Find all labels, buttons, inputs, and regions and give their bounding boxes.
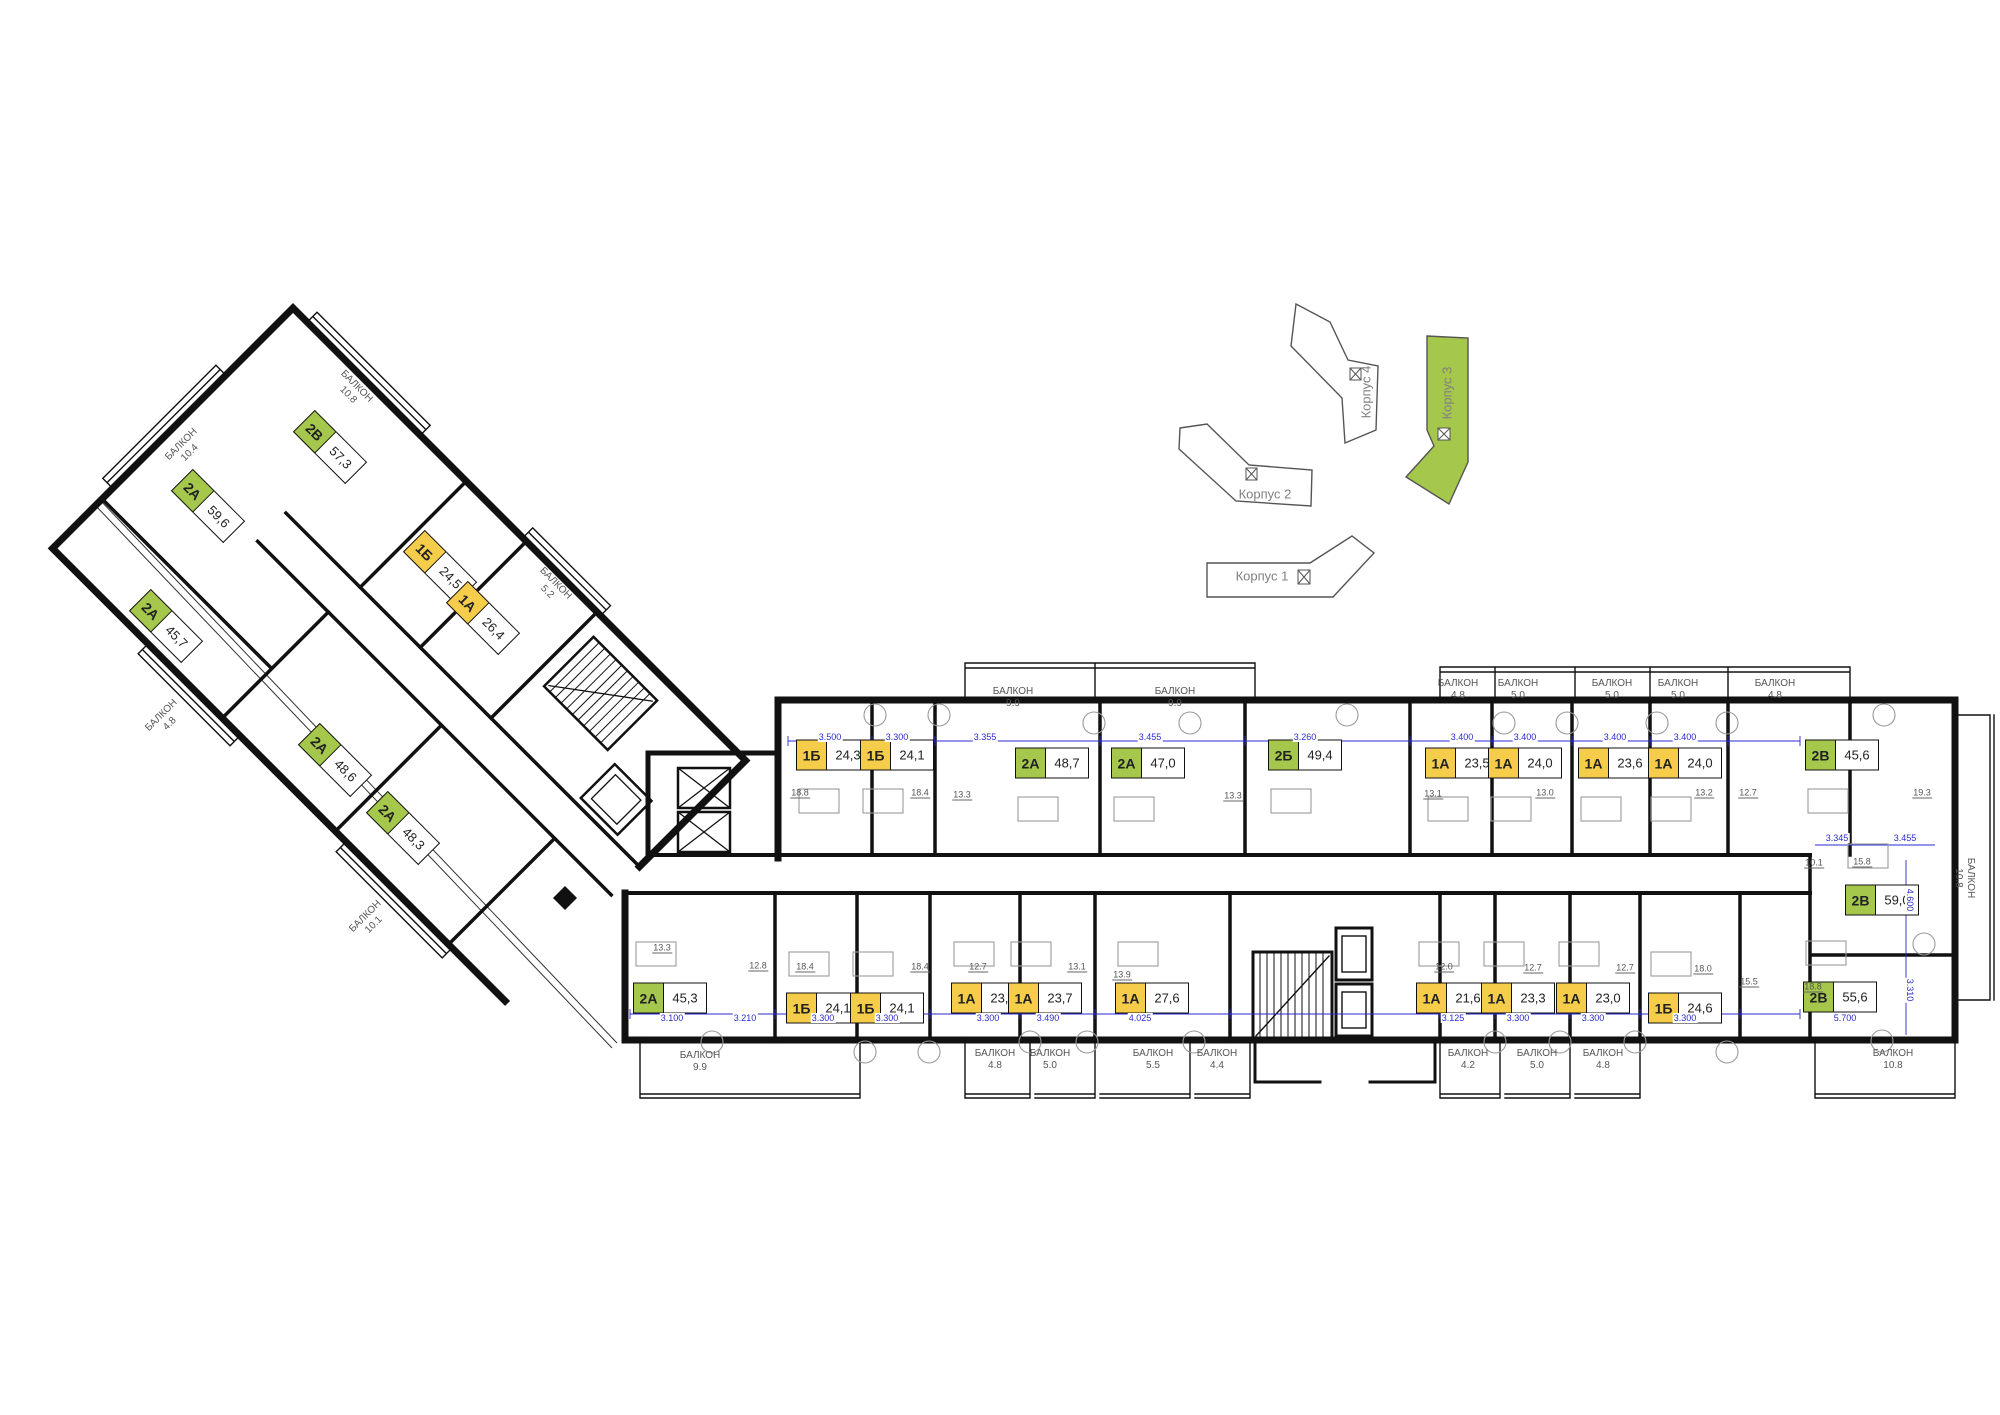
unit-badge[interactable]: 1А27,6	[1115, 983, 1189, 1014]
room-area-label: 12.7	[1523, 963, 1543, 974]
room-area-label: 18.8	[790, 788, 810, 799]
unit-badge[interactable]: 2А48,7	[1015, 748, 1089, 779]
unit-area-label: 23,3	[1512, 983, 1555, 1014]
room-area-label: 18.8	[1803, 982, 1823, 993]
unit-type-label: 1А	[1648, 748, 1679, 779]
unit-badge[interactable]: 1А23,3	[1481, 983, 1555, 1014]
minimap-label-korpus-4: Корпус 4	[1359, 366, 1374, 419]
dimension-label: 3.210	[733, 1013, 758, 1023]
dimension-label: 3.300	[811, 1013, 836, 1023]
unit-type-label: 1А	[1578, 748, 1609, 779]
balcony-label: БАЛКОН10.8	[329, 368, 375, 414]
unit-badge[interactable]: 1Б24,3	[796, 740, 870, 771]
unit-area-label: 45,6	[1836, 740, 1879, 771]
balcony-label: БАЛКОН5.5	[1133, 1048, 1174, 1072]
unit-area-label: 55,6	[1834, 982, 1877, 1013]
room-area-label: 13.9	[1112, 970, 1132, 981]
balcony-label: БАЛКОН9.9	[993, 686, 1034, 710]
unit-type-label: 1А	[1425, 748, 1456, 779]
unit-badge[interactable]: 2А48,3	[366, 791, 440, 865]
unit-area-label: 48,7	[1046, 748, 1089, 779]
labels-layer: 1Б24,31Б24,12А48,72А47,02Б49,41А23,51А24…	[0, 0, 2000, 1415]
unit-type-label: 1А	[1556, 983, 1587, 1014]
unit-badge[interactable]: 1А24,0	[1488, 748, 1562, 779]
unit-area-label: 45,3	[664, 983, 707, 1014]
dimension-label: 3.455	[1893, 833, 1918, 843]
room-area-label: 12.7	[1738, 788, 1758, 799]
unit-badge[interactable]: 2В57,3	[293, 410, 367, 484]
balcony-label: БАЛКОН5.0	[1498, 678, 1539, 702]
dimension-label: 3.300	[885, 732, 910, 742]
room-area-label: 12.0	[1434, 962, 1454, 973]
unit-badge[interactable]: 1А26,4	[446, 581, 520, 655]
room-area-label: 12.7	[968, 962, 988, 973]
dimension-label: 3.260	[1293, 732, 1318, 742]
unit-badge[interactable]: 2Б49,4	[1268, 740, 1342, 771]
balcony-label: БАЛКОН4.4	[1197, 1048, 1238, 1072]
unit-badge[interactable]: 1А21,6	[1416, 983, 1490, 1014]
room-area-label: 15.8	[1852, 857, 1872, 868]
room-area-label: 13.1	[1423, 789, 1443, 800]
room-area-label: 13.1	[1067, 962, 1087, 973]
unit-area-label: 24,1	[891, 740, 934, 771]
dimension-label: 3.355	[973, 732, 998, 742]
dimension-label: 3.300	[976, 1013, 1001, 1023]
balcony-label: БАЛКОН10.4	[163, 426, 209, 472]
balcony-label: БАЛКОН10.8	[1873, 1048, 1914, 1072]
unit-area-label: 23,7	[1039, 983, 1082, 1014]
balcony-label: БАЛКОН5.0	[1592, 678, 1633, 702]
unit-badge[interactable]: 2А59,6	[171, 469, 245, 543]
room-area-label: 12.7	[1615, 963, 1635, 974]
unit-type-label: 1А	[1008, 983, 1039, 1014]
dimension-label: 3.300	[1581, 1013, 1606, 1023]
unit-type-label: 2В	[1805, 740, 1836, 771]
unit-area-label: 24,0	[1679, 748, 1722, 779]
balcony-label: БАЛКОН4.8	[1755, 678, 1796, 702]
unit-type-label: 2В	[1845, 885, 1876, 916]
room-area-label: 12.8	[748, 961, 768, 972]
room-area-label: 18.4	[910, 788, 930, 799]
unit-badge[interactable]: 2А47,0	[1111, 748, 1185, 779]
room-area-label: 18.4	[910, 962, 930, 973]
room-area-label: 13.2	[1694, 788, 1714, 799]
unit-badge[interactable]: 1А23,6	[1578, 748, 1652, 779]
dimension-label: 3.490	[1036, 1013, 1061, 1023]
dimension-label: 3.500	[818, 732, 843, 742]
minimap-label-korpus-1: Корпус 1	[1236, 569, 1289, 584]
balcony-label: БАЛКОН9.9	[680, 1050, 721, 1074]
dimension-label: 3.400	[1450, 732, 1475, 742]
unit-type-label: 1Б	[796, 740, 827, 771]
unit-type-label: 1А	[1488, 748, 1519, 779]
room-area-label: 18.4	[795, 962, 815, 973]
unit-area-label: 47,0	[1142, 748, 1185, 779]
dimension-label: 3.400	[1603, 732, 1628, 742]
dimension-label: 5.700	[1833, 1013, 1858, 1023]
unit-type-label: 1А	[1416, 983, 1447, 1014]
dimension-label: 3.310	[1905, 978, 1915, 1003]
room-area-label: 15.5	[1739, 977, 1759, 988]
unit-area-label: 49,4	[1299, 740, 1342, 771]
room-area-label: 13.3	[652, 943, 672, 954]
room-area-label: 13.3	[952, 790, 972, 801]
dimension-label: 3.455	[1138, 732, 1163, 742]
unit-type-label: 2А	[1111, 748, 1142, 779]
room-area-label: 19.3	[1912, 788, 1932, 799]
unit-badge[interactable]: 2А45,7	[129, 589, 203, 663]
dimension-label: 3.300	[875, 1013, 900, 1023]
room-area-label: 13.3	[1223, 791, 1243, 802]
balcony-label: БАЛКОН4.8	[975, 1048, 1016, 1072]
unit-area-label: 23,0	[1587, 983, 1630, 1014]
minimap-label-korpus-2: Корпус 2	[1239, 487, 1292, 502]
balcony-label: БАЛКОН4.8	[1583, 1048, 1624, 1072]
room-area-label: 10.1	[1804, 858, 1824, 869]
dimension-label: 4.025	[1128, 1013, 1153, 1023]
unit-type-label: 2А	[633, 983, 664, 1014]
unit-badge[interactable]: 1А23,7	[1008, 983, 1082, 1014]
unit-type-label: 1А	[1115, 983, 1146, 1014]
unit-badge[interactable]: 1Б24,1	[860, 740, 934, 771]
room-area-label: 18.0	[1693, 964, 1713, 975]
unit-badge[interactable]: 1А23,0	[1556, 983, 1630, 1014]
dimension-label: 3.300	[1506, 1013, 1531, 1023]
balcony-label: БАЛКОН4.8	[143, 697, 189, 743]
balcony-label: БАЛКОН4.8	[1438, 678, 1479, 702]
balcony-label: БАЛКОН4.2	[1448, 1048, 1489, 1072]
dimension-label: 3.125	[1441, 1013, 1466, 1023]
dimension-label: 3.345	[1825, 833, 1850, 843]
unit-badge[interactable]: 1А24,0	[1648, 748, 1722, 779]
unit-type-label: 1Б	[860, 740, 891, 771]
unit-area-label: 24,0	[1519, 748, 1562, 779]
dimension-label: 3.400	[1513, 732, 1538, 742]
dimension-label: 3.400	[1673, 732, 1698, 742]
unit-type-label: 2А	[1015, 748, 1046, 779]
unit-type-label: 1А	[1481, 983, 1512, 1014]
unit-badge[interactable]: 2А48,6	[298, 723, 372, 797]
dimension-label: 3.300	[1673, 1013, 1698, 1023]
balcony-label: БАЛКОН9.9	[1155, 686, 1196, 710]
floorplan-canvas: 1Б24,31Б24,12А48,72А47,02Б49,41А23,51А24…	[0, 0, 2000, 1415]
unit-area-label: 23,6	[1609, 748, 1652, 779]
balcony-label: БАЛКОН5.2	[528, 565, 574, 611]
dimension-label: 3.100	[660, 1013, 685, 1023]
balcony-label: БАЛКОН5.0	[1517, 1048, 1558, 1072]
room-area-label: 13.0	[1535, 788, 1555, 799]
unit-badge[interactable]: 2В45,6	[1805, 740, 1879, 771]
unit-area-label: 27,6	[1146, 983, 1189, 1014]
balcony-label: БАЛКОН10.8	[1952, 858, 1976, 899]
dimension-label: 4.600	[1905, 888, 1915, 913]
balcony-label: БАЛКОН10.1	[347, 898, 393, 944]
unit-type-label: 1А	[951, 983, 982, 1014]
balcony-label: БАЛКОН5.0	[1030, 1048, 1071, 1072]
unit-badge[interactable]: 2А45,3	[633, 983, 707, 1014]
balcony-label: БАЛКОН5.0	[1658, 678, 1699, 702]
unit-type-label: 2Б	[1268, 740, 1299, 771]
minimap-label-korpus-3: Корпус 3	[1440, 367, 1455, 420]
